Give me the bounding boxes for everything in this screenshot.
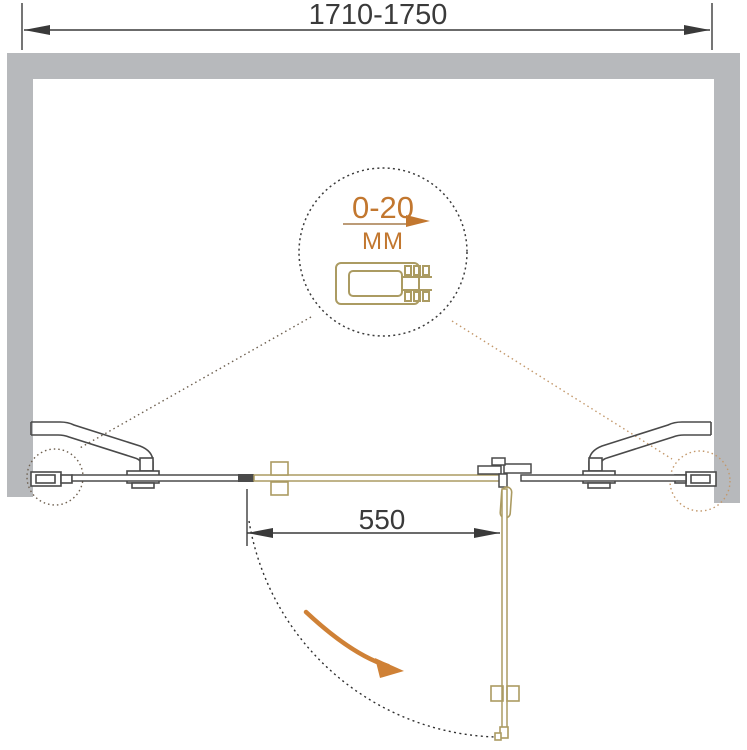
top-dim-arrow-right [684,25,710,35]
diagram-linework [0,0,747,750]
door-pivot-hardware [478,458,531,487]
fixed-panel-end-seal [238,474,254,482]
fixed-panel-left [72,475,240,481]
door-swing-arc [249,521,496,737]
door-swing-arrow [306,612,404,678]
adjustment-unit-label: MM [330,229,436,254]
door-closed-panel [254,475,501,481]
door-dim-arrow-left [247,528,273,538]
top-dim-arrow-left [24,25,50,35]
door-dim-arrow-right [474,528,500,538]
right-arm-post [589,458,602,471]
left-wall-profile [31,472,72,486]
detail-leader-left [78,317,311,449]
left-arm-post [140,458,153,471]
door-width-label: 550 [332,505,432,534]
door-bottom-guide [495,727,508,740]
adjustment-range-label: 0-20 [328,192,438,225]
installation-diagram: 1710-1750 0-20 MM 550 [0,0,747,750]
fixed-panel-right [521,475,686,481]
overall-width-label: 1710-1750 [278,0,478,30]
detail-leader-right [452,321,672,459]
